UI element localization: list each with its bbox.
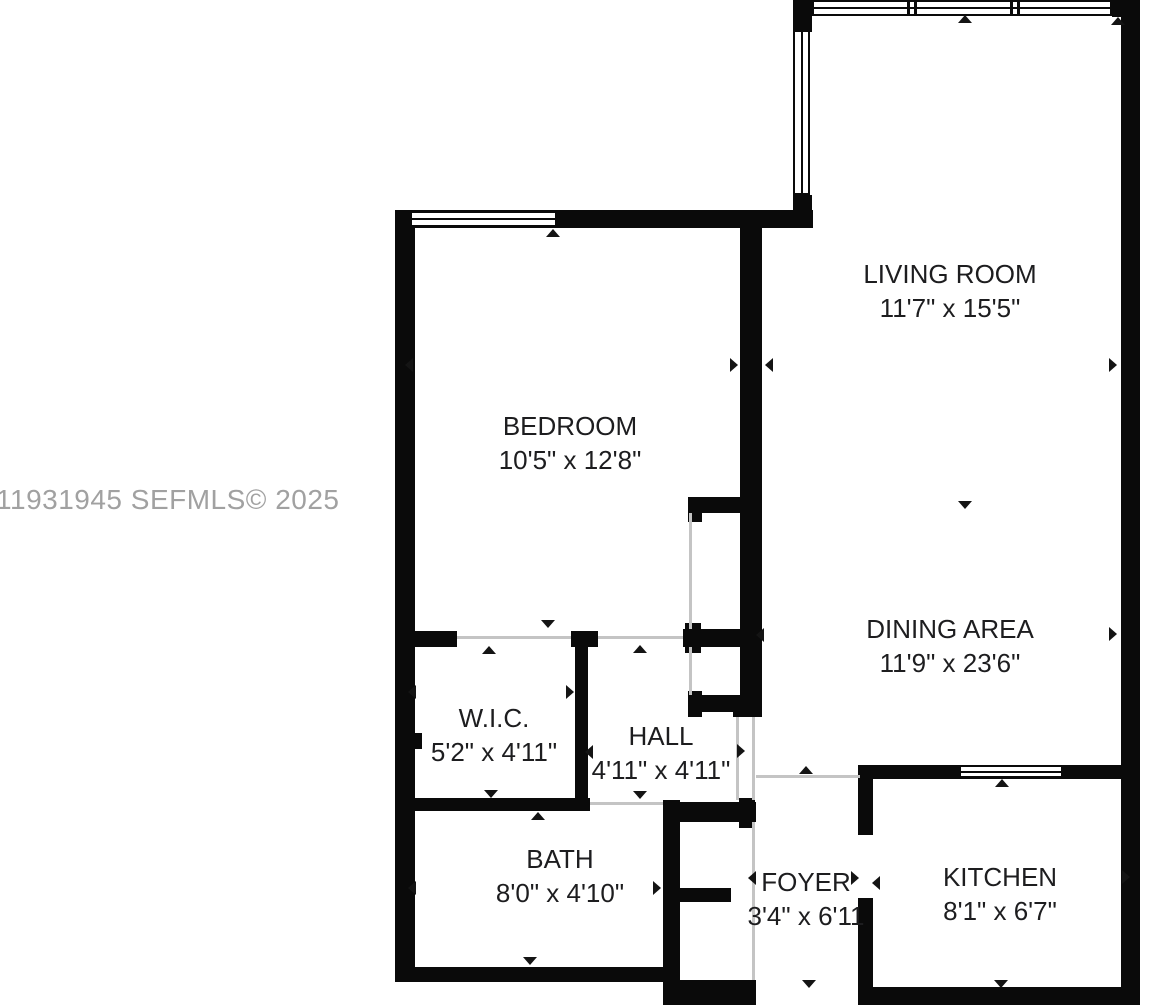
room-label-hall: HALL4'11" x 4'11": [592, 719, 731, 787]
room-label-foyer: FOYER3'4" x 6'11: [748, 865, 865, 933]
room-dimensions: 11'9" x 23'6": [866, 646, 1034, 680]
room-name: DINING AREA: [866, 612, 1034, 646]
room-dimensions: 8'0" x 4'10": [496, 876, 624, 910]
room-label-bedroom: BEDROOM10'5" x 12'8": [499, 409, 642, 477]
floorplan-canvas: LIVING ROOM11'7" x 15'5"BEDROOM10'5" x 1…: [0, 0, 1149, 1005]
room-label-kitchen: KITCHEN8'1" x 6'7": [943, 860, 1057, 928]
room-name: BATH: [496, 842, 624, 876]
room-label-bath: BATH8'0" x 4'10": [496, 842, 624, 910]
room-dimensions: 3'4" x 6'11: [748, 899, 865, 933]
room-dimensions: 10'5" x 12'8": [499, 443, 642, 477]
watermark: 11931945 SEFMLS© 2025: [0, 484, 340, 516]
room-label-dining-area: DINING AREA11'9" x 23'6": [866, 612, 1034, 680]
room-dimensions: 11'7" x 15'5": [863, 291, 1036, 325]
room-name: FOYER: [748, 865, 865, 899]
room-name: KITCHEN: [943, 860, 1057, 894]
room-dimensions: 5'2" x 4'11": [431, 735, 557, 769]
room-name: W.I.C.: [431, 701, 557, 735]
room-label-wic: W.I.C.5'2" x 4'11": [431, 701, 557, 769]
room-name: HALL: [592, 719, 731, 753]
room-dimensions: 4'11" x 4'11": [592, 753, 731, 787]
room-name: BEDROOM: [499, 409, 642, 443]
room-dimensions: 8'1" x 6'7": [943, 894, 1057, 928]
room-name: LIVING ROOM: [863, 257, 1036, 291]
room-label-living-room: LIVING ROOM11'7" x 15'5": [863, 257, 1036, 325]
